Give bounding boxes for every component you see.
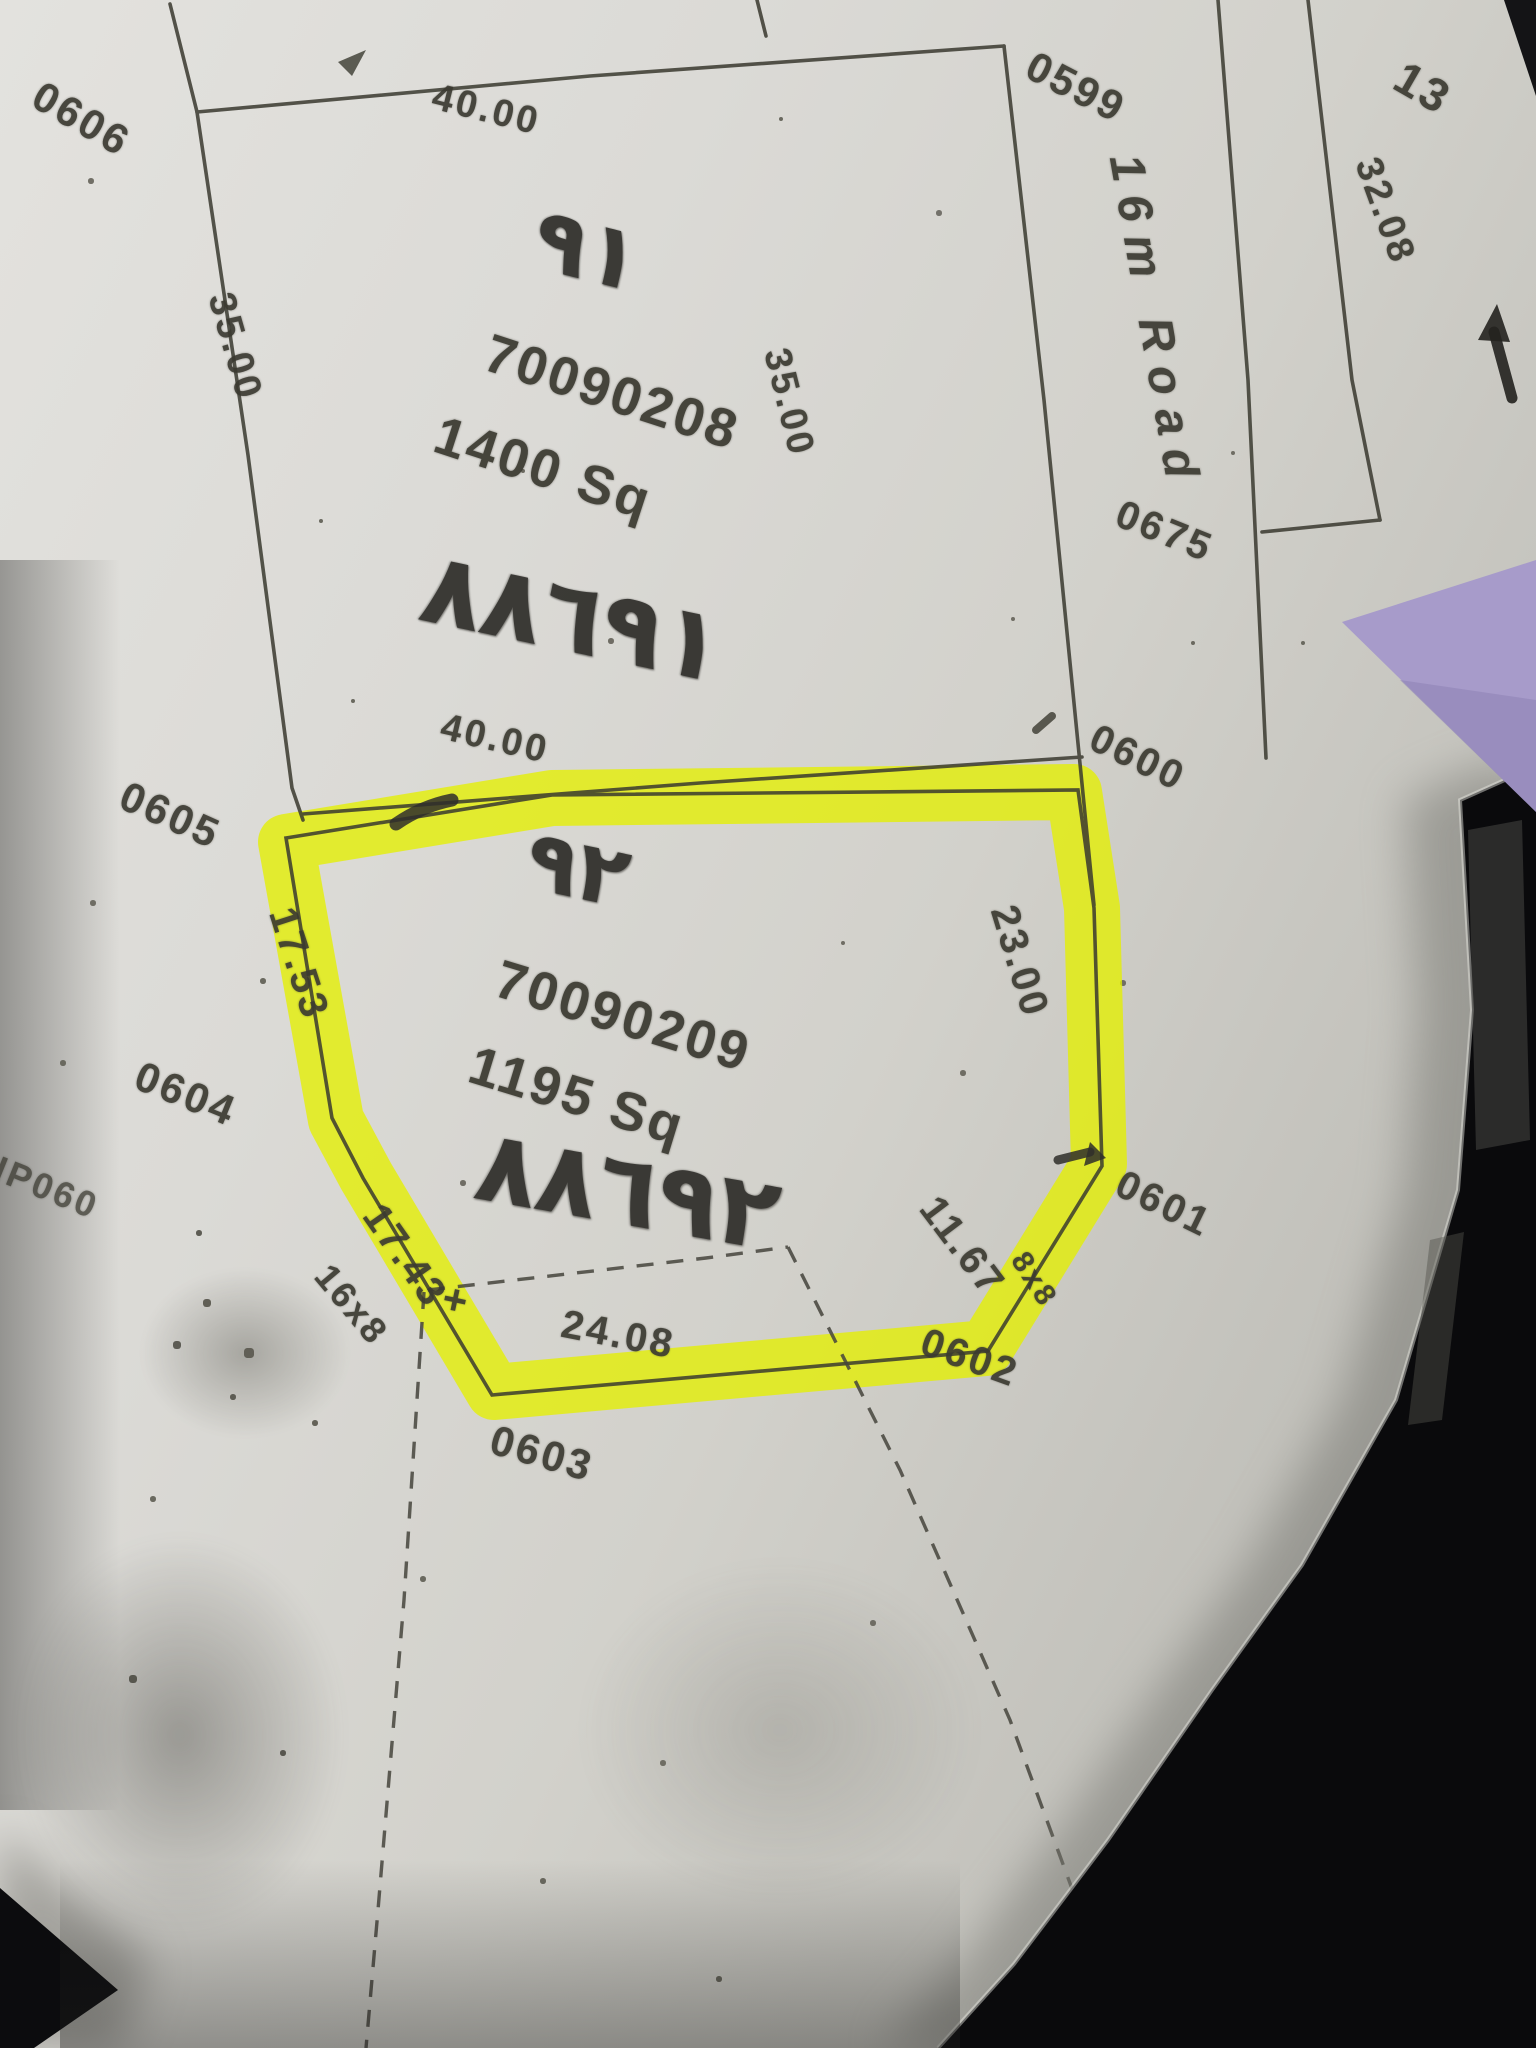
plot92-number-handwritten: ٩٢ [518,810,639,927]
plot91-left-boundary [170,4,303,820]
pen-tick-near-0600 [1036,716,1052,730]
big-arrow-head-icon [1478,304,1510,342]
road-right-edge [1218,0,1266,758]
plot91-top-boundary [197,46,1004,112]
paper-shadow-bottom [60,1860,960,2048]
gray-streak-in-dark-area [1468,820,1530,1150]
small-arrow-top-icon [338,50,366,76]
photo-background-top-right [1504,0,1536,96]
photo-of-cadastral-plot-map: 0606 0599 13 0675 0605 0600 0604 0601 06… [0,0,1536,2048]
plot92-boundary [286,790,1102,1395]
top-boundary-stub [757,0,766,36]
far-right-boundary [1308,0,1380,520]
branch-line [1262,520,1380,532]
